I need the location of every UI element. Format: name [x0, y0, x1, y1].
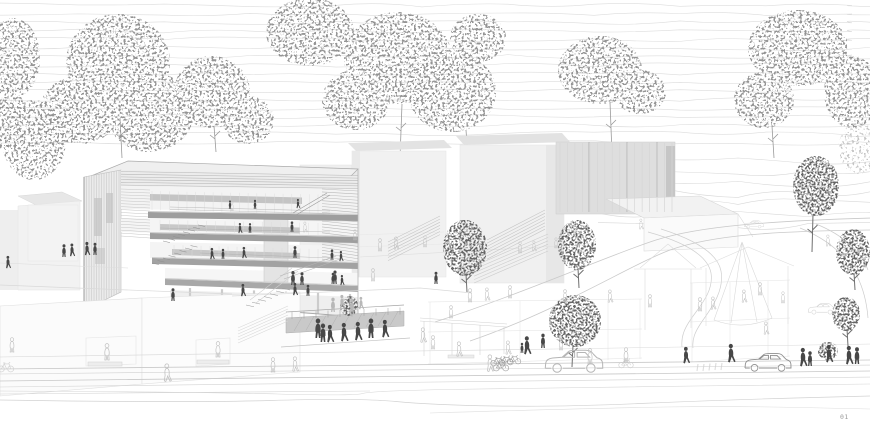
hatch-line: [121, 215, 150, 217]
linework-path: [714, 242, 772, 325]
bench: [88, 362, 122, 366]
architectural-illustration: 01: [0, 0, 870, 435]
tree-canopy-blob: [832, 297, 860, 331]
contour-line: [0, 13, 870, 16]
facade-window-slot: [106, 193, 113, 223]
person-silhouette: [846, 346, 853, 365]
bg-building-left-annex: [28, 205, 78, 261]
tree-canopy-blob: [266, 0, 354, 66]
tree-canopy: [836, 229, 870, 275]
person-silhouette: [421, 328, 427, 343]
facade-window-slot: [94, 198, 102, 236]
person-silhouette: [758, 283, 761, 295]
figure-number: 01: [840, 413, 849, 421]
ground-contour-lines: [0, 384, 870, 413]
person-silhouette: [431, 336, 435, 349]
tree-canopy-blob: [838, 122, 870, 174]
tree-trunk: [396, 104, 406, 158]
contour-line: [0, 3, 870, 7]
tree-canopy: [443, 220, 487, 276]
terrace-box-mid: [142, 292, 300, 384]
tree-trunk: [574, 268, 584, 288]
hatch-line: [121, 210, 150, 211]
terrace-box-left: [0, 298, 142, 396]
person-silhouette: [826, 235, 831, 246]
tree-canopy: [408, 52, 496, 132]
person-silhouette: [855, 347, 860, 364]
person-silhouette: [800, 348, 807, 367]
hatch-line: [121, 213, 150, 215]
tree-canopy-blob: [443, 220, 487, 276]
tree-canopy-blob: [322, 70, 390, 130]
person-silhouette: [457, 342, 463, 357]
linework-path: [700, 247, 794, 326]
person-silhouette: [541, 334, 545, 348]
tree-canopy: [558, 220, 596, 270]
person-silhouette: [742, 290, 747, 302]
bicycle: [619, 359, 633, 368]
tree-canopy: [549, 295, 601, 347]
car: [808, 304, 836, 315]
person-silhouette: [434, 272, 437, 284]
person-silhouette: [468, 289, 472, 302]
person-silhouette: [711, 297, 716, 309]
bg-building-mid1-body: [352, 151, 446, 277]
car: [545, 350, 603, 372]
person-silhouette: [524, 336, 531, 354]
tree-canopy: [558, 36, 666, 114]
person-silhouette: [315, 319, 320, 338]
person-silhouette: [608, 290, 613, 302]
tree-canopy: [793, 156, 839, 216]
tree-canopy: [838, 122, 870, 174]
tree-canopy-blob: [793, 156, 839, 216]
person-silhouette: [521, 343, 524, 353]
person-silhouette: [683, 347, 690, 364]
tree-canopy-blob: [0, 18, 40, 98]
ground-contour: [0, 396, 870, 406]
tree-canopy-blob: [614, 70, 666, 114]
person-silhouette: [624, 348, 628, 362]
person-silhouette: [639, 219, 643, 229]
hatch-line: [121, 236, 150, 238]
person-silhouette: [648, 295, 651, 307]
tree-canopy-blob: [222, 96, 274, 144]
tree-trunk: [843, 329, 853, 346]
tree-canopy-blob: [408, 52, 496, 132]
person-silhouette: [506, 341, 511, 355]
tree-canopy: [734, 10, 870, 128]
tree-canopy: [832, 297, 860, 331]
tree-trunk: [768, 126, 778, 158]
person-silhouette: [368, 319, 373, 338]
bicycle: [493, 361, 508, 371]
tree-canopy-blob: [558, 220, 596, 270]
bg-building-far-left: [0, 210, 20, 290]
pavilion-corner-line: [738, 214, 753, 237]
linework-path: [281, 338, 410, 347]
tree-canopy: [40, 14, 194, 152]
person-silhouette: [781, 292, 784, 303]
tree-trunk: [568, 345, 578, 367]
illustration-canvas: 01: [0, 0, 870, 435]
person-silhouette: [485, 288, 490, 300]
tree-canopy-blob: [836, 229, 870, 275]
tree-trunk: [210, 126, 220, 152]
tree-trunk: [850, 273, 860, 290]
linework-path: [690, 280, 790, 362]
person-silhouette: [808, 351, 812, 366]
elevator-core: [264, 214, 288, 282]
ground-contour: [430, 407, 870, 413]
bench: [197, 360, 229, 364]
hatch-line: [121, 233, 150, 235]
person-silhouette: [306, 285, 309, 296]
person-silhouette: [321, 324, 326, 342]
person-silhouette: [764, 322, 769, 334]
tree-canopy: [266, 0, 354, 66]
tree-canopy-blob: [549, 295, 601, 347]
tree-canopy: [174, 56, 274, 144]
pavilion-front: [644, 214, 738, 251]
linework-path: [428, 299, 642, 364]
tree-canopy-blob: [734, 72, 794, 128]
